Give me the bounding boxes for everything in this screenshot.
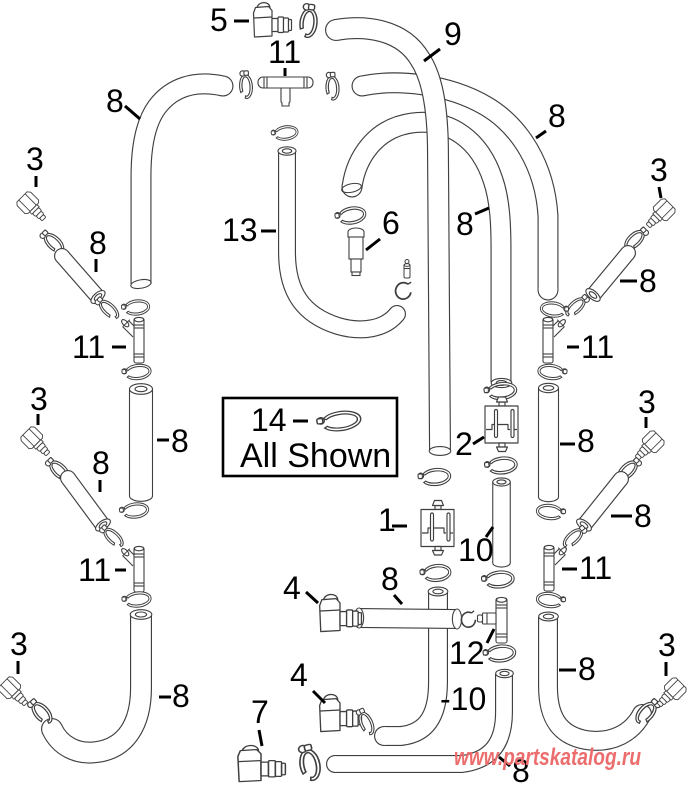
svg-text:8: 8 [634,498,652,534]
svg-text:8: 8 [171,423,189,459]
svg-text:8: 8 [89,225,107,261]
svg-text:3: 3 [26,141,44,177]
svg-text:13: 13 [222,212,258,248]
svg-text:8: 8 [106,83,124,119]
svg-text:14: 14 [251,402,287,438]
svg-text:11: 11 [268,34,301,70]
svg-text:8: 8 [456,206,474,242]
svg-text:8: 8 [172,678,190,714]
svg-text:8: 8 [577,423,595,459]
svg-text:8: 8 [92,445,110,481]
svg-text:6: 6 [382,205,400,241]
svg-text:3: 3 [10,626,28,662]
svg-text:1: 1 [378,502,396,538]
svg-text:All Shown: All Shown [240,437,391,475]
svg-text:www.partskatalog.ru: www.partskatalog.ru [454,744,641,771]
svg-text:3: 3 [638,384,656,420]
svg-text:11: 11 [581,329,614,365]
svg-text:-10: -10 [440,681,486,717]
svg-text:12: 12 [449,635,485,671]
svg-text:4: 4 [290,657,308,693]
svg-text:8: 8 [578,651,596,687]
svg-text:8: 8 [548,98,566,134]
svg-text:3: 3 [658,627,676,663]
svg-text:8: 8 [381,561,399,597]
svg-text:8: 8 [639,263,657,299]
svg-text:3: 3 [650,152,668,188]
svg-text:3: 3 [30,381,48,417]
svg-text:2: 2 [455,426,473,462]
svg-text:11: 11 [579,550,612,586]
svg-text:7: 7 [251,694,269,730]
svg-text:10: 10 [458,532,494,568]
svg-text:11: 11 [72,329,105,365]
svg-text:11: 11 [78,552,111,588]
svg-text:9: 9 [444,16,462,52]
svg-text:4: 4 [283,570,301,606]
svg-text:5: 5 [210,2,228,38]
